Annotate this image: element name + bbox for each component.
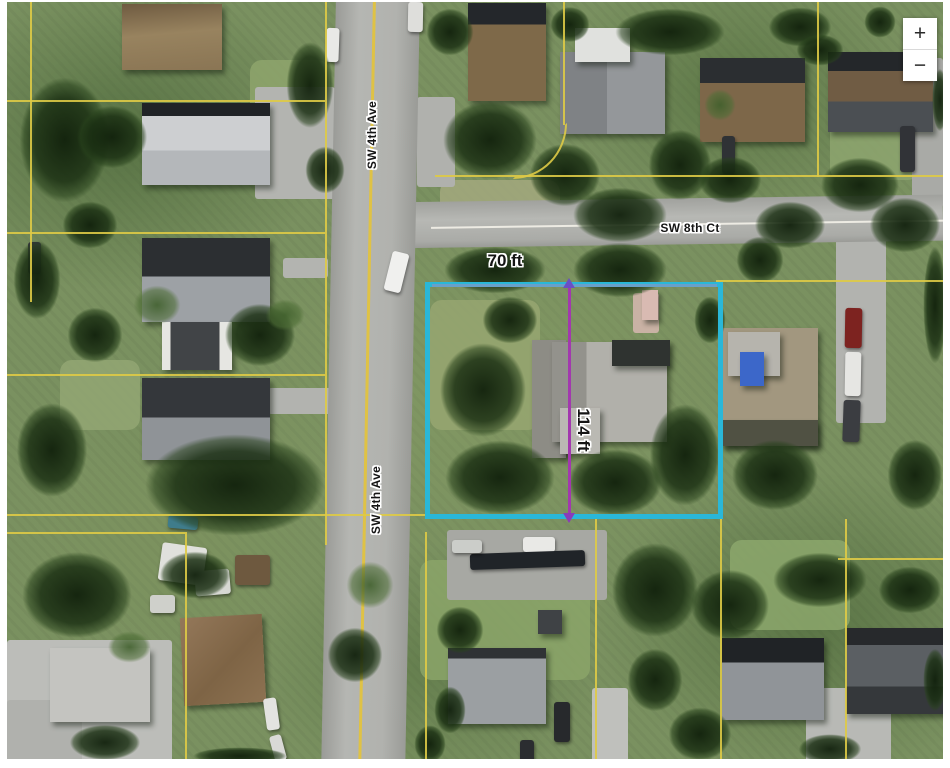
tree-canopy	[120, 420, 350, 550]
vehicle	[554, 702, 570, 742]
map-zoom-control: + −	[903, 18, 937, 81]
vehicle	[520, 740, 534, 759]
vehicle	[523, 537, 555, 552]
tree-canopy	[7, 230, 67, 330]
measure-arrow-top	[563, 278, 575, 288]
parcel-boundary-line	[7, 232, 325, 234]
vehicle	[900, 126, 915, 172]
building-roof	[122, 4, 222, 70]
tree-canopy	[920, 230, 943, 380]
parcel-boundary-line	[563, 2, 565, 125]
tree-canopy	[720, 430, 830, 520]
tree-canopy	[880, 430, 943, 520]
frontage-label: 70 ft	[465, 251, 545, 271]
zoom-in-button[interactable]: +	[903, 18, 937, 49]
tree-canopy	[545, 2, 595, 47]
building-roof	[538, 610, 562, 634]
parcel-boundary-line	[845, 519, 847, 759]
parcel-boundary-line	[325, 2, 327, 545]
tree-canopy	[660, 700, 740, 759]
shrub	[260, 295, 310, 335]
building-roof	[142, 103, 270, 185]
tree-canopy	[60, 720, 150, 759]
building-roof	[560, 52, 665, 134]
parcel-boundary-line	[7, 514, 427, 516]
parcel-boundary-line	[435, 175, 943, 177]
building-roof	[180, 614, 266, 706]
parcel-boundary-line	[185, 532, 187, 759]
vehicle	[452, 540, 482, 553]
building-roof	[468, 3, 546, 101]
tree-canopy	[55, 195, 125, 255]
street-label-sw-8th-ct: SW 8th Ct	[640, 221, 740, 235]
building-roof	[740, 352, 764, 386]
vehicle	[235, 555, 270, 585]
parcel-boundary-line	[817, 2, 819, 177]
tree-canopy	[430, 600, 490, 660]
tree-canopy	[420, 2, 480, 62]
driveway	[283, 258, 328, 278]
parcel-boundary-line	[7, 532, 185, 534]
measure-arrow-bottom	[563, 513, 575, 523]
depth-measure-line	[568, 285, 571, 516]
parcel-boundary-line	[425, 532, 427, 759]
parcel-boundary-line	[7, 100, 325, 102]
shrub	[127, 280, 187, 330]
tree-canopy	[920, 640, 943, 720]
aerial-map[interactable]: SW 4th Ave SW 4th Ave SW 8th Ct 70 ft 11…	[7, 2, 943, 759]
vehicle	[845, 352, 862, 396]
tree-canopy	[320, 620, 390, 690]
vehicle	[842, 400, 860, 443]
shrub	[700, 85, 740, 125]
street-label-sw-4th-ave-north: SW 4th Ave	[365, 89, 379, 181]
vehicle	[263, 697, 280, 730]
driveway	[592, 688, 628, 759]
tree-canopy	[60, 300, 130, 370]
parcel-boundary-line	[720, 519, 722, 759]
tree-canopy	[760, 545, 880, 615]
tree-canopy	[430, 680, 470, 740]
street-label-sw-4th-ave-south: SW 4th Ave	[369, 454, 383, 546]
tree-canopy	[870, 560, 943, 620]
parcel-boundary-line	[7, 374, 325, 376]
tree-canopy	[790, 30, 850, 70]
vehicle	[845, 308, 863, 348]
tree-canopy	[7, 390, 97, 510]
tree-canopy	[150, 545, 240, 605]
tree-canopy	[600, 2, 740, 62]
shrub	[102, 627, 157, 667]
zoom-out-button[interactable]: −	[903, 50, 937, 81]
depth-label: 114 ft	[573, 390, 593, 470]
tree-canopy	[280, 30, 340, 140]
parcel-boundary-line	[838, 558, 943, 560]
parcel-boundary-line	[30, 2, 32, 302]
parcel-boundary-line	[716, 280, 943, 282]
shrub	[340, 555, 400, 615]
tree-canopy	[690, 150, 770, 210]
parcel-boundary-line	[595, 519, 597, 759]
tree-canopy	[67, 97, 157, 177]
building-roof	[722, 638, 824, 720]
tree-canopy	[860, 2, 900, 42]
